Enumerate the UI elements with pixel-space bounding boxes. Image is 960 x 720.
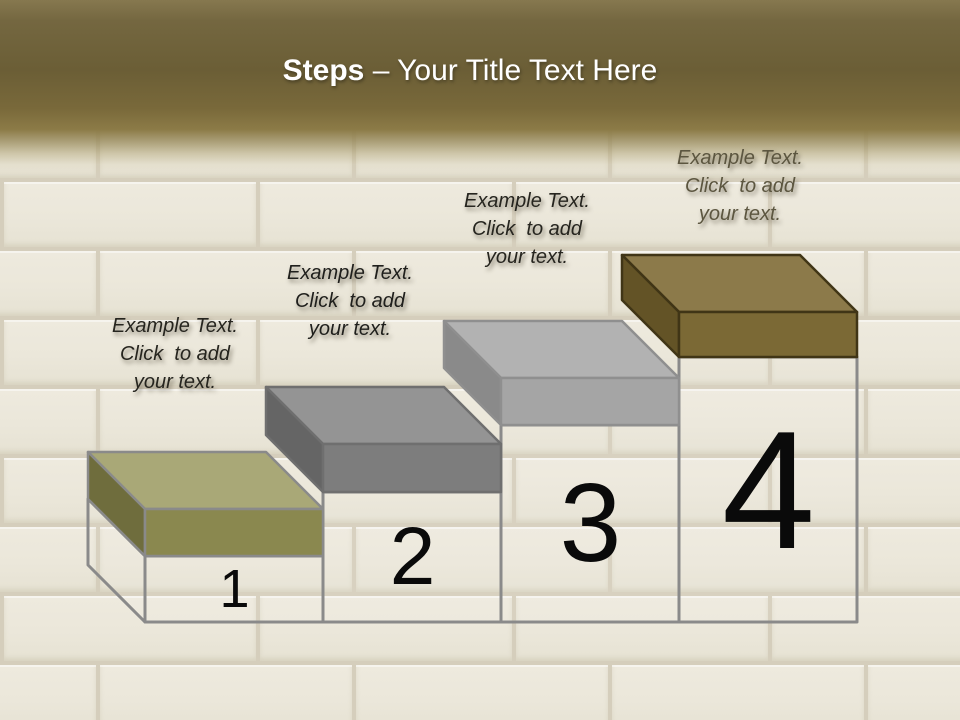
step-number-3: 3 bbox=[501, 425, 679, 622]
step-1-front-face bbox=[145, 509, 323, 556]
step-label-3: Example Text. Click to add your text. bbox=[417, 187, 637, 271]
step-number-1: 1 bbox=[145, 556, 323, 622]
step-number-4: 4 bbox=[679, 357, 857, 622]
step-3-front-face bbox=[501, 378, 679, 425]
step-number-2: 2 bbox=[323, 492, 501, 622]
step-label-2: Example Text. Click to add your text. bbox=[240, 259, 460, 343]
step-label-4: Example Text. Click to add your text. bbox=[630, 144, 850, 228]
step-4-front-face bbox=[679, 312, 857, 357]
slide: 1 2 3 4 Example Text. Click to add your … bbox=[0, 0, 960, 720]
step-2-front-face bbox=[323, 444, 501, 492]
